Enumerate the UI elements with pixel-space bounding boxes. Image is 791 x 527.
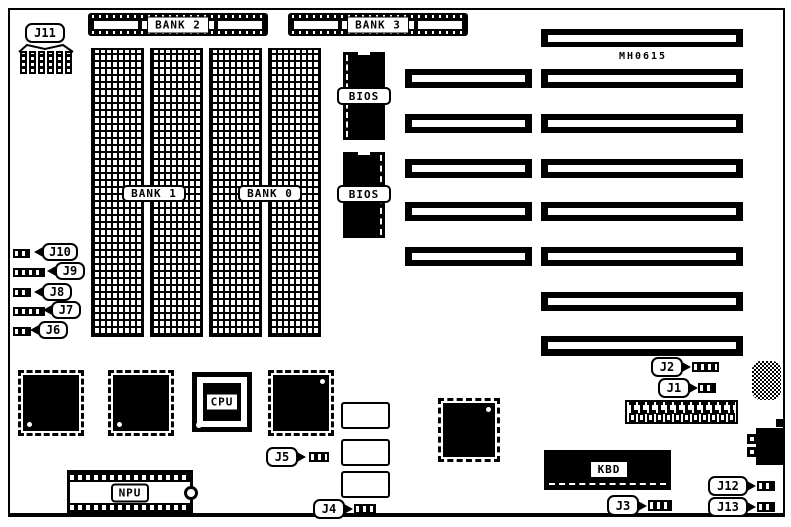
npu-pin-strip bbox=[70, 503, 190, 512]
qfp-chip bbox=[108, 370, 174, 436]
dip-element bbox=[38, 51, 45, 74]
npu-notch bbox=[184, 486, 198, 500]
npu-socket: NPU bbox=[67, 470, 193, 515]
jumper-label-j10-text: J10 bbox=[49, 246, 71, 258]
bank2-label: BANK 2 bbox=[147, 16, 209, 33]
jumper-label-j5-text: J5 bbox=[275, 451, 289, 463]
header-pin-block bbox=[710, 402, 717, 422]
jumper-label-j4-text: J4 bbox=[322, 503, 336, 515]
isa-slot-extension bbox=[405, 114, 532, 133]
isa-slot-extension bbox=[405, 69, 532, 88]
header-pin-block bbox=[728, 402, 735, 422]
dip-element bbox=[29, 51, 36, 74]
jumper-pins-j12 bbox=[757, 481, 775, 491]
jumper-label-j8: J8 bbox=[42, 283, 72, 301]
jumper-pins-j5 bbox=[309, 452, 329, 462]
jumper-label-j4: J4 bbox=[313, 499, 345, 519]
keyboard-controller-chip: KBD bbox=[544, 450, 671, 490]
din-connector-tab bbox=[776, 419, 785, 427]
din-connector-pin bbox=[747, 447, 757, 457]
jumper-label-j9-text: J9 bbox=[63, 265, 77, 277]
jumper-label-j13: J13 bbox=[708, 497, 748, 517]
npu-pin-strip bbox=[70, 473, 190, 482]
header-pin-block bbox=[719, 402, 726, 422]
header-pin-block bbox=[629, 402, 636, 422]
jumper-pins-j8 bbox=[13, 288, 31, 297]
dip-element bbox=[65, 51, 72, 74]
bios-top-label: BIOS bbox=[337, 87, 391, 105]
bank2-simm-socket: BANK 2 bbox=[88, 13, 268, 36]
jumper-pins-j10 bbox=[13, 249, 30, 258]
header-pin-block bbox=[674, 402, 681, 422]
qfp-chip bbox=[438, 398, 500, 462]
isa-slot bbox=[541, 114, 743, 133]
oscillator bbox=[341, 439, 390, 466]
jumper-label-j7: J7 bbox=[51, 301, 81, 319]
jumper-label-j3: J3 bbox=[607, 495, 639, 516]
jumper-pins-j4 bbox=[354, 504, 376, 514]
header-pin-block bbox=[701, 402, 708, 422]
dip-element bbox=[47, 51, 54, 74]
cpu-socket: CPU bbox=[192, 372, 252, 432]
power-header-row bbox=[625, 400, 738, 424]
bank1-label: BANK 1 bbox=[122, 185, 186, 202]
dip-element bbox=[20, 51, 27, 74]
dip-element bbox=[56, 51, 63, 74]
isa-slot bbox=[541, 247, 743, 266]
isa-slot-extension bbox=[405, 159, 532, 178]
jumper-label-j3-text: J3 bbox=[616, 500, 630, 512]
jumper-pins-j13 bbox=[757, 502, 775, 512]
jumper-label-j5: J5 bbox=[266, 447, 298, 467]
isa-slot bbox=[541, 29, 743, 47]
jumper-label-j9: J9 bbox=[55, 262, 85, 280]
motherboard-diagram: BANK 2 BANK 3 J11 BANK 1 BANK 0 BIOS BIO… bbox=[0, 0, 791, 527]
header-pin-block bbox=[665, 402, 672, 422]
simm-slot-cutout bbox=[94, 21, 138, 29]
oscillator bbox=[341, 471, 390, 498]
cpu-label: CPU bbox=[206, 394, 238, 411]
header-pin-block bbox=[683, 402, 690, 422]
isa-slot bbox=[541, 336, 743, 356]
bios-bottom-label: BIOS bbox=[337, 185, 391, 203]
header-pin-block bbox=[656, 402, 663, 422]
header-pin-block bbox=[692, 402, 699, 422]
bank3-label: BANK 3 bbox=[347, 16, 409, 33]
header-pin-block bbox=[647, 402, 654, 422]
kbd-label: KBD bbox=[590, 461, 628, 478]
simm-slot-cutout bbox=[294, 21, 338, 29]
header-pin-block bbox=[638, 402, 645, 422]
oscillator bbox=[341, 402, 390, 429]
jumper-pins-j2 bbox=[692, 362, 719, 372]
jumper-label-j6-text: J6 bbox=[46, 324, 60, 336]
jumper-pins-j3 bbox=[648, 500, 672, 511]
isa-slot bbox=[541, 292, 743, 311]
bank0-label: BANK 0 bbox=[238, 185, 302, 202]
j11-dip-block bbox=[20, 51, 72, 74]
keyboard-din-connector bbox=[756, 428, 785, 465]
board-model-text: MH0615 bbox=[598, 51, 688, 62]
isa-slot-extension bbox=[405, 247, 532, 266]
isa-slot bbox=[541, 159, 743, 178]
jumper-label-j8-text: J8 bbox=[50, 286, 64, 298]
jumper-label-j12-text: J12 bbox=[717, 480, 739, 492]
jumper-label-j12: J12 bbox=[708, 476, 748, 496]
jumper-pins-j9 bbox=[13, 268, 45, 277]
jumper-label-j6: J6 bbox=[38, 321, 68, 339]
simm-slot-cutout bbox=[218, 21, 262, 29]
jumper-label-j7-text: J7 bbox=[59, 304, 73, 316]
jumper-label-j11: J11 bbox=[25, 23, 65, 43]
jumper-label-j1-text: J1 bbox=[667, 382, 681, 394]
jumper-label-j2: J2 bbox=[651, 357, 683, 377]
jumper-label-j11-text: J11 bbox=[34, 27, 56, 39]
jumper-pins-j7 bbox=[13, 307, 45, 316]
npu-label: NPU bbox=[111, 483, 149, 502]
speaker-component bbox=[752, 361, 781, 400]
qfp-chip bbox=[18, 370, 84, 436]
jumper-label-j1: J1 bbox=[658, 378, 690, 398]
bank3-simm-socket: BANK 3 bbox=[288, 13, 468, 36]
simm-slot-cutout bbox=[418, 21, 462, 29]
isa-slot-extension bbox=[405, 202, 532, 221]
qfp-chip bbox=[268, 370, 334, 436]
jumper-label-j2-text: J2 bbox=[660, 361, 674, 373]
din-connector-pin bbox=[747, 434, 757, 444]
jumper-pins-j1 bbox=[698, 383, 716, 393]
jumper-label-j10: J10 bbox=[42, 243, 78, 261]
isa-slot bbox=[541, 69, 743, 88]
jumper-label-j13-text: J13 bbox=[717, 501, 739, 513]
jumper-pins-j6 bbox=[13, 327, 31, 336]
isa-slot bbox=[541, 202, 743, 221]
